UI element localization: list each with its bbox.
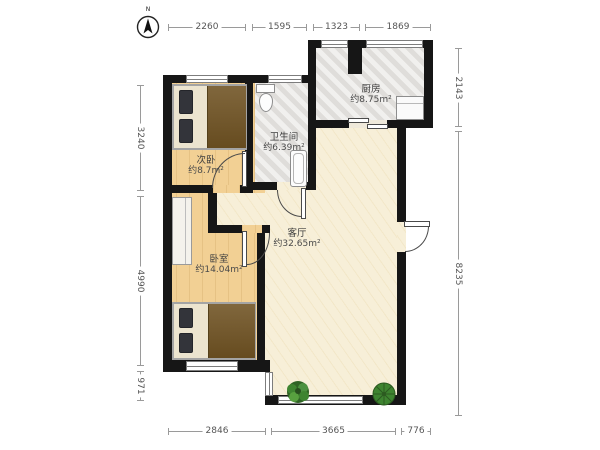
dimension-top-3: 1323 xyxy=(313,24,360,31)
room-area: 约14.04m² xyxy=(195,265,242,276)
plant-icon xyxy=(371,381,397,407)
wall-left xyxy=(163,75,172,372)
bathtub-inner xyxy=(293,153,304,184)
dimension-left-2: 4990 xyxy=(137,196,144,366)
compass-icon xyxy=(135,13,161,41)
sliding-door-leaf-left xyxy=(348,118,369,123)
dimension-top-4: 1869 xyxy=(365,24,431,31)
wardrobe xyxy=(172,197,192,265)
bed-bedroom xyxy=(172,302,256,360)
duvet xyxy=(208,304,255,358)
room-name: 卧室 xyxy=(195,254,242,265)
pillow xyxy=(179,333,193,353)
room-name: 客厅 xyxy=(273,228,320,239)
wall-kitchen-pier xyxy=(348,48,362,74)
window-bathroom xyxy=(268,75,302,83)
window-kitchen-right xyxy=(366,40,423,48)
dimension-bottom-2: 3665 xyxy=(271,428,396,435)
kitchen-counter xyxy=(396,96,424,120)
dimension-top-2: 1595 xyxy=(252,24,307,31)
dimension-value: 971 xyxy=(135,374,145,397)
room-area: 约32.65m² xyxy=(273,239,320,250)
north-compass: N xyxy=(132,6,164,46)
dimension-value: 8235 xyxy=(453,259,463,288)
room-label-second-bedroom: 次卧 约8.7m² xyxy=(188,155,224,177)
bathtub xyxy=(290,150,307,187)
dimension-value: 2260 xyxy=(193,22,222,32)
dimension-value: 4990 xyxy=(135,267,145,296)
dimension-bottom-3: 776 xyxy=(401,428,431,435)
dimension-left-1: 3240 xyxy=(137,85,144,191)
pillow xyxy=(179,90,193,114)
room-label-kitchen: 厨房 约8.75m² xyxy=(350,84,391,106)
dimension-value: 3240 xyxy=(135,124,145,153)
door-arc-entry xyxy=(405,226,429,252)
floorplan-canvas: 次卧 约8.7m² 卫生间 约6.39m² 厨房 约8.75m² 客厅 约32.… xyxy=(0,0,600,450)
dimension-value: 1595 xyxy=(265,22,294,32)
room-area: 约8.75m² xyxy=(350,95,391,106)
dimension-value: 3665 xyxy=(319,426,348,436)
pillow xyxy=(179,308,193,328)
dimension-value: 2846 xyxy=(203,426,232,436)
room-area: 约6.39m² xyxy=(263,143,304,154)
bed-second-bedroom xyxy=(172,84,247,150)
room-name: 卫生间 xyxy=(263,132,304,143)
duvet xyxy=(207,86,246,148)
dimension-value: 776 xyxy=(404,426,427,436)
room-name: 厨房 xyxy=(350,84,391,95)
dimension-left-3: 971 xyxy=(137,371,144,401)
outside-area xyxy=(163,372,265,405)
plant-icon xyxy=(283,379,313,405)
dimension-bottom-1: 2846 xyxy=(168,428,266,435)
window-kitchen-left xyxy=(321,40,348,48)
toilet-tank xyxy=(256,84,275,93)
dimension-right-2: 8235 xyxy=(455,131,462,416)
room-label-bedroom: 卧室 约14.04m² xyxy=(195,254,242,276)
north-label: N xyxy=(132,6,164,13)
dimension-top-1: 2260 xyxy=(168,24,246,31)
window-bedroom xyxy=(186,361,238,371)
dimension-value: 1869 xyxy=(384,22,413,32)
dimension-value: 2143 xyxy=(453,73,463,102)
dimension-value: 1323 xyxy=(322,22,351,32)
wall-kitchen-right xyxy=(424,40,433,128)
dimension-right-1: 2143 xyxy=(455,48,462,127)
window-living-left xyxy=(265,372,273,396)
window-second-bedroom xyxy=(186,75,228,83)
wall-kitchen-bathroom xyxy=(308,48,316,190)
wall-living-right xyxy=(397,120,406,405)
pillow xyxy=(179,119,193,143)
sliding-door-leaf-right xyxy=(367,124,388,129)
room-area: 约8.7m² xyxy=(188,166,224,177)
room-label-living-room: 客厅 约32.65m² xyxy=(273,228,320,250)
room-label-bathroom: 卫生间 约6.39m² xyxy=(263,132,304,154)
room-name: 次卧 xyxy=(188,155,224,166)
